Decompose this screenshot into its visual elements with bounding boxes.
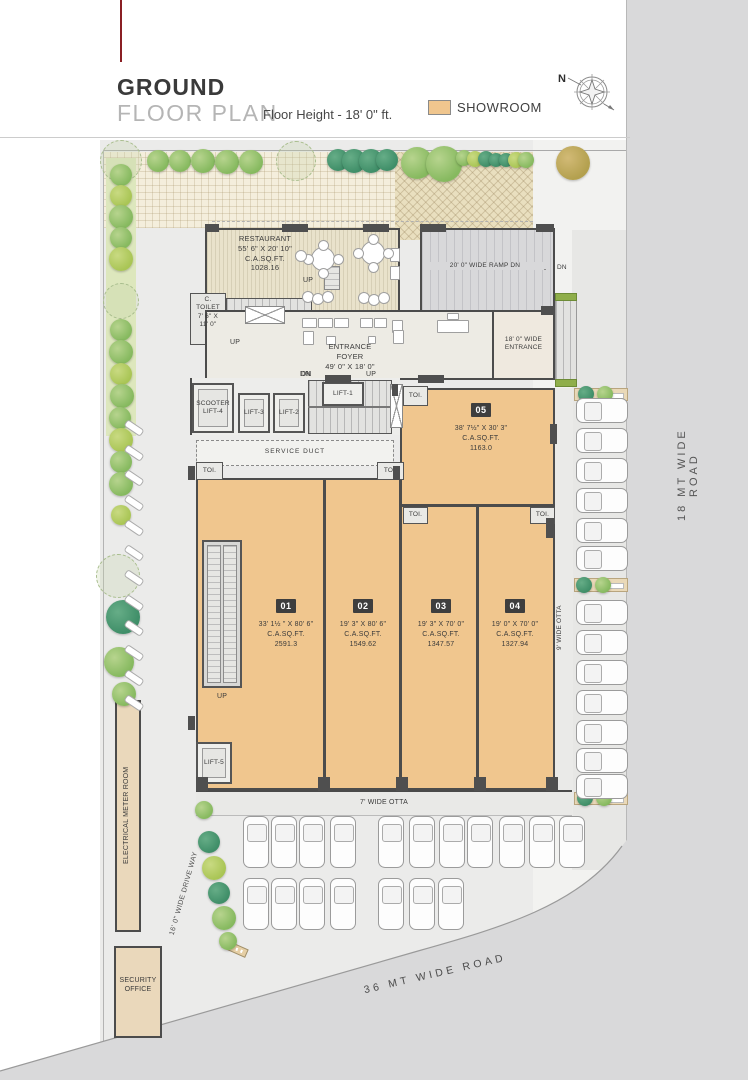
restaurant-stair <box>324 266 340 290</box>
duct-shaft <box>390 384 403 428</box>
electrical-meter-room-label: ELECTRICAL METER ROOM <box>122 740 131 890</box>
legend-showroom-swatch <box>428 100 451 115</box>
ramp-label: 20' 0" WIDE RAMP DN <box>426 262 544 270</box>
toilet-box-lift-row: TOI. <box>403 386 428 406</box>
showroom-04-label: 04 19' 0" X 70' 0" C.A.SQ.FT. 1327.94 <box>470 596 560 650</box>
header-divider <box>0 137 630 138</box>
escalator-lane-1 <box>207 545 221 683</box>
liftstair-dn-label: DN <box>301 370 312 379</box>
lift-1: LIFT-1 <box>322 382 364 406</box>
lift-3: LIFT-3 <box>238 393 270 433</box>
compass-icon: N <box>552 60 622 120</box>
escalator <box>202 540 242 688</box>
svg-text:N: N <box>558 73 566 85</box>
wide-entrance-label: 18' 0" WIDE ENTRANCE <box>494 336 553 353</box>
otta-7-label: 7' WIDE OTTA <box>309 798 459 807</box>
planter-bottom <box>555 379 577 387</box>
showroom-02-label: 02 19' 3" X 80' 6" C.A.SQ.FT. 1549.62 <box>318 596 408 650</box>
showroom-03-number: 03 <box>431 599 450 613</box>
escalator-up-label: UP <box>202 692 242 701</box>
lift-5: LIFT-5 <box>196 742 232 784</box>
toilet-box-sr02: TOI. <box>377 462 404 480</box>
showroom-05-number: 05 <box>471 403 490 417</box>
lift-stairs-rail <box>308 406 392 408</box>
scooter-lift-4-label: SCOOTERLIFT-4 <box>196 400 230 417</box>
header-red-line <box>120 0 122 62</box>
security-office-label: SECURITY OFFICE <box>114 976 162 994</box>
toilet-box-sr04: TOI. <box>530 507 555 524</box>
page-subtitle: FLOOR PLAN <box>117 100 278 127</box>
toilet-box-sr03: TOI. <box>403 507 428 524</box>
showroom-02-number: 02 <box>353 599 372 613</box>
page-title: GROUND <box>117 74 225 101</box>
foyer-up-label: UP <box>366 370 376 379</box>
entrance-steps <box>555 300 577 380</box>
showroom-05-label: 05 38' 7½" X 30' 3" C.A.SQ.FT. 1163.0 <box>436 400 526 454</box>
legend-showroom-label: SHOWROOM <box>457 100 542 115</box>
right-planter-2 <box>574 578 628 592</box>
lift-2: LIFT-2 <box>273 393 305 433</box>
showroom-04-number: 04 <box>505 599 524 613</box>
common-toilet-label: C. TOILET 7' 6" X 11' 0" <box>190 296 226 330</box>
planter-top <box>555 293 577 301</box>
showroom-01-number: 01 <box>276 599 295 613</box>
restaurant-up-label: UP <box>303 276 313 285</box>
floor-height-note: Floor Height - 18' 0" ft. <box>263 107 392 122</box>
ramp-dn-label: DN <box>557 264 567 272</box>
right-planter-3 <box>574 792 628 805</box>
scooter-lift-4: SCOOTERLIFT-4 <box>192 383 234 433</box>
toilet-box-sr01: TOI. <box>196 462 223 480</box>
entrance-foyer-label: ENTRANCE FOYER 49' 0" X 18' 0" <box>300 342 400 371</box>
floor-plan-canvas: 18 MT WIDE ROAD 36 MT WIDE ROAD GROUND F… <box>0 0 748 1080</box>
stairhall-up-label: UP <box>230 338 240 347</box>
stair-shaft <box>245 306 285 324</box>
service-duct-label: SERVICE DUCT <box>196 448 394 456</box>
escalator-lane-2 <box>223 545 237 683</box>
right-planter-1 <box>574 388 628 401</box>
road-right-label: 18 MT WIDE ROAD <box>676 415 700 535</box>
restaurant-label: RESTAURANT 55' 6" X 20' 10" C.A.SQ.FT. 1… <box>212 234 318 273</box>
